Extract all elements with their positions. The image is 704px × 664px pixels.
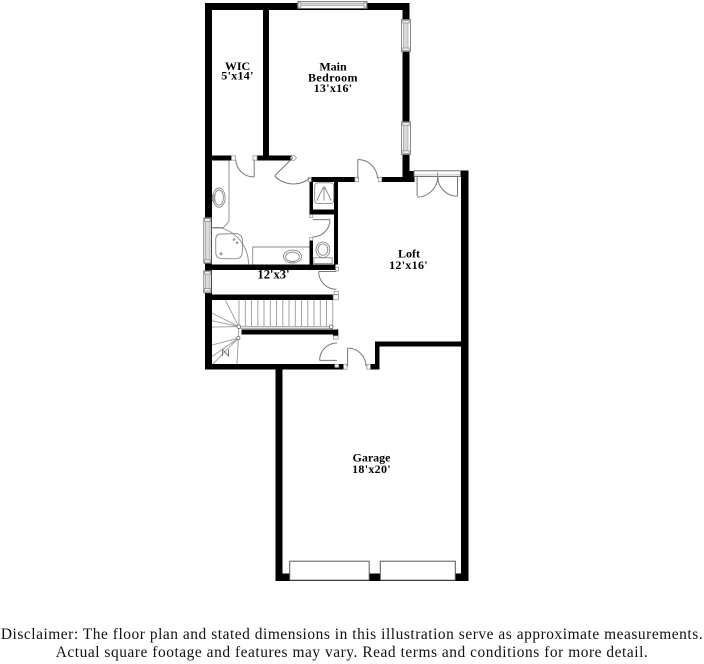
svg-text:12'x3': 12'x3' [257, 268, 289, 282]
svg-text:5'x14': 5'x14' [221, 69, 253, 83]
svg-text:18'x20': 18'x20' [352, 462, 391, 476]
svg-text:13'x16': 13'x16' [314, 81, 353, 95]
svg-text:12'x16': 12'x16' [389, 258, 428, 272]
